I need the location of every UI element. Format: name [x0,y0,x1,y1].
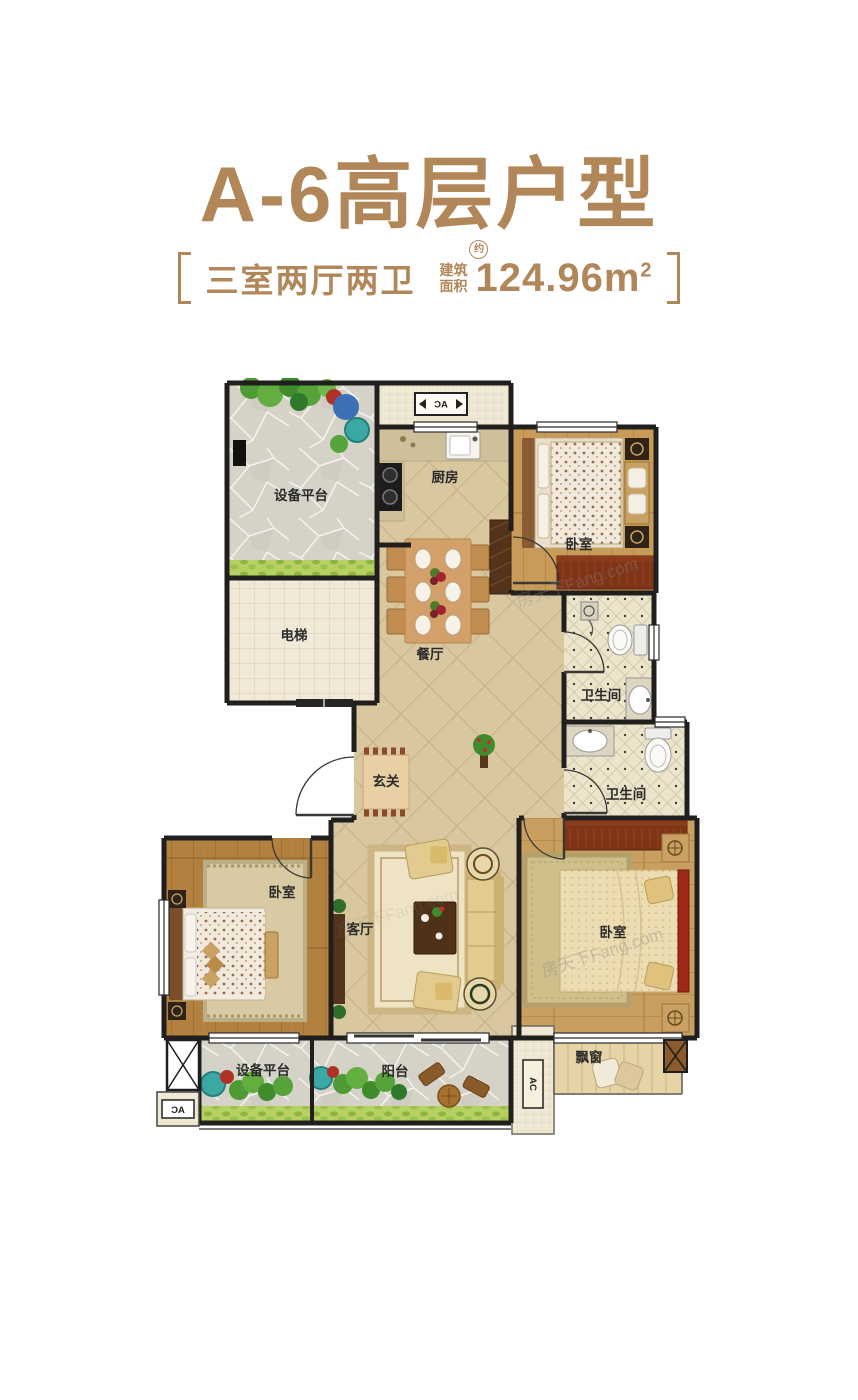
room-label-bay-window: 飘窗 [576,1049,603,1065]
room-label-foyer: 玄关 [373,773,400,789]
shaft-left [167,1040,199,1090]
shaft-right [664,1040,687,1072]
ac-box-top: AC [415,393,467,415]
ac-label-bottom-left: AC [171,1105,185,1116]
area-prefix-line1: 建筑 [439,262,467,278]
room-label-bath-bottom: 卫生间 [606,786,647,802]
area-prefix-line2: 面积 [439,278,467,294]
room-label-balcony: 阳台 [382,1063,409,1079]
page-title: A-6高层户型 [0,152,858,238]
bracket-right-icon [667,252,680,304]
floorplan-svg: AC AC AC 设备平台 厨房 卧室 电梯 餐厅 卫生间 卫生间 玄关 卧室 … [149,378,711,1140]
area-value: 124.96m2 [475,256,652,301]
room-label-bath-top: 卫生间 [581,687,622,703]
layout-label: 三室两厅两卫 [205,254,415,302]
floorplan-page: A-6高层户型 三室两厅两卫 建筑 面积 约 124.96m2 [0,0,858,1400]
room-label-bedroom-top: 卧室 [566,536,594,552]
room-label-bedroom-left: 卧室 [269,884,296,900]
room-label-equip-top: 设备平台 [274,487,328,503]
area-block: 建筑 面积 约 124.96m2 [439,256,652,301]
area-superscript: 2 [640,259,652,281]
ac-box-bottom-right: AC [523,1060,543,1108]
room-label-kitchen: 厨房 [432,469,459,485]
approx-badge: 约 [469,240,488,259]
room-label-elevator: 电梯 [281,627,308,643]
room-label-dining: 餐厅 [416,646,444,662]
room-label-equip-bottom: 设备平台 [236,1062,290,1078]
bracket-left-icon [178,252,191,304]
sliding-door [347,1033,489,1043]
floorplan: AC AC AC 设备平台 厨房 卧室 电梯 餐厅 卫生间 卫生间 玄关 卧室 … [149,378,711,1145]
ac-label-bottom-right: AC [527,1077,538,1091]
ac-box-bottom-left: AC [157,1092,199,1126]
elevator-door [296,699,353,707]
ac-label-top: AC [434,400,448,411]
dining-set [387,539,489,643]
area-prefix: 建筑 面积 [439,262,467,294]
subtitle-row: 三室两厅两卫 建筑 面积 约 124.96m2 [0,252,858,304]
